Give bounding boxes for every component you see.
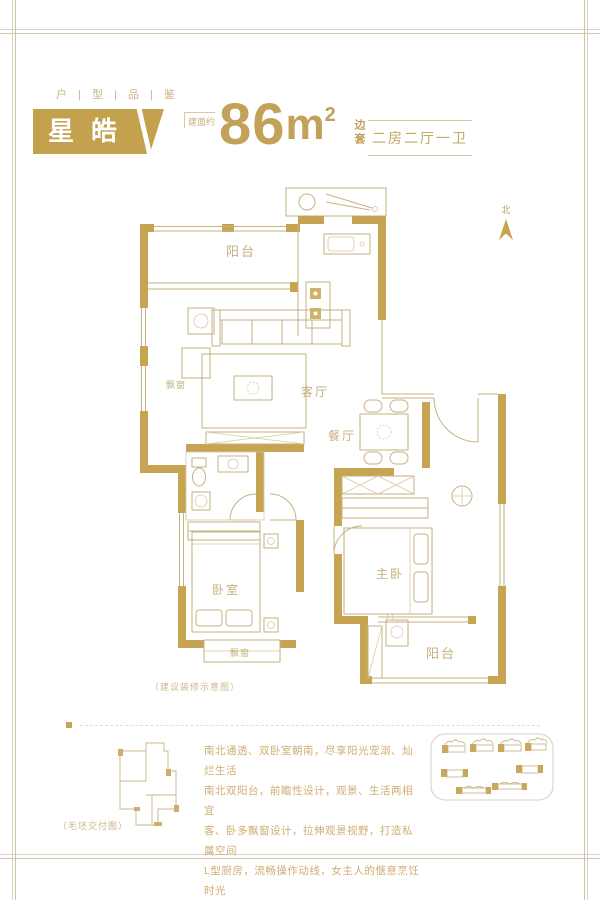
floor-plan: 阳台 客厅 餐厅 飘窗 卧室 主卧 飘窗 阳台 xyxy=(138,186,523,691)
selling-points: 南北通透、双卧室朝南，尽享阳光宠溺、灿烂生活 南北双阳台，前瞻性设计，观景、生活… xyxy=(204,741,420,900)
frame-line xyxy=(584,0,585,900)
dining-chair xyxy=(390,400,408,412)
bedroom-door-arc xyxy=(270,494,296,520)
series-eyebrow: 户 | 型 | 品 | 鉴 xyxy=(56,86,179,102)
toilet-tank xyxy=(192,458,206,467)
toilet-icon xyxy=(193,468,206,486)
floorplan-poster: 户 | 型 | 品 | 鉴 星皓 建面约 86 m 2 边套 二房二厅一卫 北 xyxy=(0,0,600,900)
bathroom xyxy=(186,452,264,520)
frame-line xyxy=(587,0,588,900)
bath-door-arc xyxy=(230,494,256,520)
bath-sink-icon xyxy=(228,459,238,469)
plant-icon xyxy=(194,314,208,328)
pillow xyxy=(196,610,222,626)
entry-door-arc xyxy=(434,398,478,442)
flag-slash-decoration xyxy=(136,106,153,158)
wash-basin-icon xyxy=(299,194,315,210)
sofa-cushion xyxy=(312,320,342,344)
position-tag: 边套 xyxy=(351,119,367,147)
nightstand xyxy=(264,618,278,632)
kitchen xyxy=(306,234,370,328)
sofa-cushion xyxy=(252,320,282,344)
dining-room xyxy=(360,400,408,464)
area-number: 86 xyxy=(219,96,286,154)
dining-chair xyxy=(364,400,382,412)
master-bedroom xyxy=(342,476,472,614)
label-dining-room: 餐厅 xyxy=(328,428,356,443)
pillow xyxy=(414,534,428,564)
vanity xyxy=(218,456,248,472)
label-master-bedroom: 主卧 xyxy=(376,567,404,581)
dining-chair xyxy=(390,452,408,464)
area-label: 建面约 xyxy=(184,112,215,128)
label-balcony-bottom: 阳台 xyxy=(426,646,456,661)
sofa-arm xyxy=(342,310,350,346)
armchair xyxy=(182,348,210,378)
label-bay-window-left: 飘窗 xyxy=(166,379,186,390)
sofa-cushion xyxy=(282,320,312,344)
bullet-square xyxy=(66,722,72,728)
site-key-plan xyxy=(428,730,558,810)
coffee-table xyxy=(234,376,272,400)
frame-line xyxy=(0,29,600,30)
plan-caption: （建议装修示意图） xyxy=(150,680,240,693)
area-group: 建面约 86 m 2 xyxy=(184,96,336,154)
frame-line xyxy=(12,0,13,900)
label-living-room: 客厅 xyxy=(301,384,329,399)
frame-line xyxy=(0,33,600,34)
floor-plan-drawing: 阳台 客厅 餐厅 飘窗 卧室 主卧 飘窗 阳台 xyxy=(138,186,523,691)
area-exponent: 2 xyxy=(325,104,336,127)
bare-shell-mini-plan xyxy=(106,737,191,832)
laundry-sink xyxy=(386,620,408,646)
sofa-cushion xyxy=(222,320,252,344)
area-unit: m xyxy=(286,96,325,154)
bedroom-left xyxy=(188,522,278,632)
cabinet xyxy=(342,476,414,494)
selling-point-line: 客、卧多飘窗设计，拉伸观景视野，打造私属空间 xyxy=(204,821,420,861)
side-table xyxy=(188,308,214,334)
dining-chair xyxy=(364,452,382,464)
mini-plan-caption: （毛坯交付图） xyxy=(58,819,128,832)
balcony-bottom-fixtures xyxy=(368,614,408,678)
frame-line xyxy=(15,0,16,900)
unit-name-flag: 星皓 xyxy=(33,109,164,154)
layout-tag: 二房二厅一卫 xyxy=(368,120,472,156)
pillow xyxy=(414,572,428,602)
dining-table xyxy=(360,414,408,450)
label-balcony-top: 阳台 xyxy=(226,244,256,259)
selling-point-line: 南北通透、双卧室朝南，尽享阳光宠溺、灿烂生活 xyxy=(204,741,420,781)
centerpiece-icon xyxy=(377,425,391,439)
dashed-divider xyxy=(80,725,540,726)
unit-name: 星皓 xyxy=(48,109,134,154)
selling-point-line: L型厨房，流畅操作动线，女主人的惬意烹饪时光 xyxy=(204,861,420,900)
label-bedroom: 卧室 xyxy=(212,582,240,597)
pillow xyxy=(226,610,252,626)
sofa-back xyxy=(220,310,342,320)
selling-point-line: 南北双阳台，前瞻性设计，观景、生活两相宜 xyxy=(204,781,420,821)
walls xyxy=(140,216,506,684)
utility-platform xyxy=(286,188,386,216)
nightstand xyxy=(264,534,278,548)
label-bay-window-bottom: 飘窗 xyxy=(230,647,250,658)
master-door-arc xyxy=(334,526,362,554)
sofa-arm xyxy=(212,310,220,346)
